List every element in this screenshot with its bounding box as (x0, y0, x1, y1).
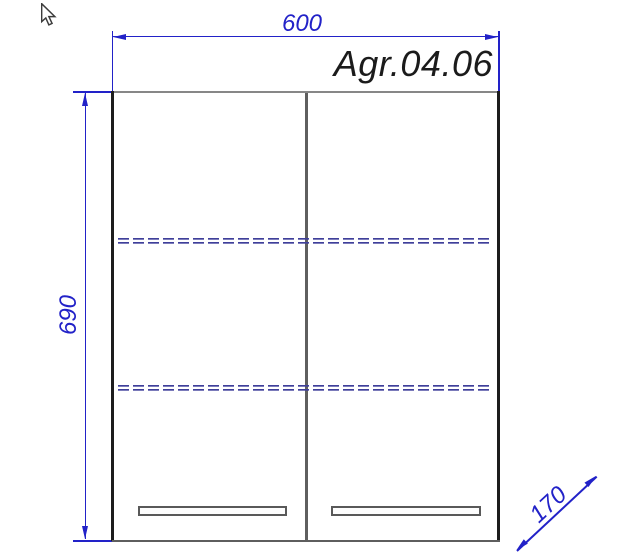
cabinet-bottom-edge (112, 540, 500, 543)
door-handle-left (138, 506, 287, 516)
shelf-hidden-line-lower (118, 385, 489, 391)
cabinet-left-edge (111, 91, 114, 541)
height-dim-arrowhead-top (82, 93, 88, 106)
width-dim-arrowhead-right (485, 34, 498, 40)
width-dim-ext-left (112, 31, 114, 91)
width-dim-arrowhead-left (113, 34, 126, 40)
width-dim-ext-right (498, 31, 500, 91)
model-label: Agr.04.06 (290, 46, 493, 82)
width-dimension-label: 600 (272, 12, 332, 36)
height-dimension-label: 690 (57, 285, 81, 345)
shelf-hidden-line-upper (118, 238, 489, 244)
door-divider-line (305, 93, 308, 540)
depth-dimension: 170 (517, 477, 597, 551)
height-dim-arrowhead-bottom (82, 526, 88, 539)
height-dim-line (85, 93, 87, 539)
door-handle-right (331, 506, 481, 516)
drawing-canvas: 600 Agr.04.06 690 170 (0, 0, 617, 554)
arrow-pointer-icon (41, 3, 57, 27)
depth-dimension-label: 170 (501, 459, 597, 551)
cabinet-right-edge (497, 91, 500, 542)
